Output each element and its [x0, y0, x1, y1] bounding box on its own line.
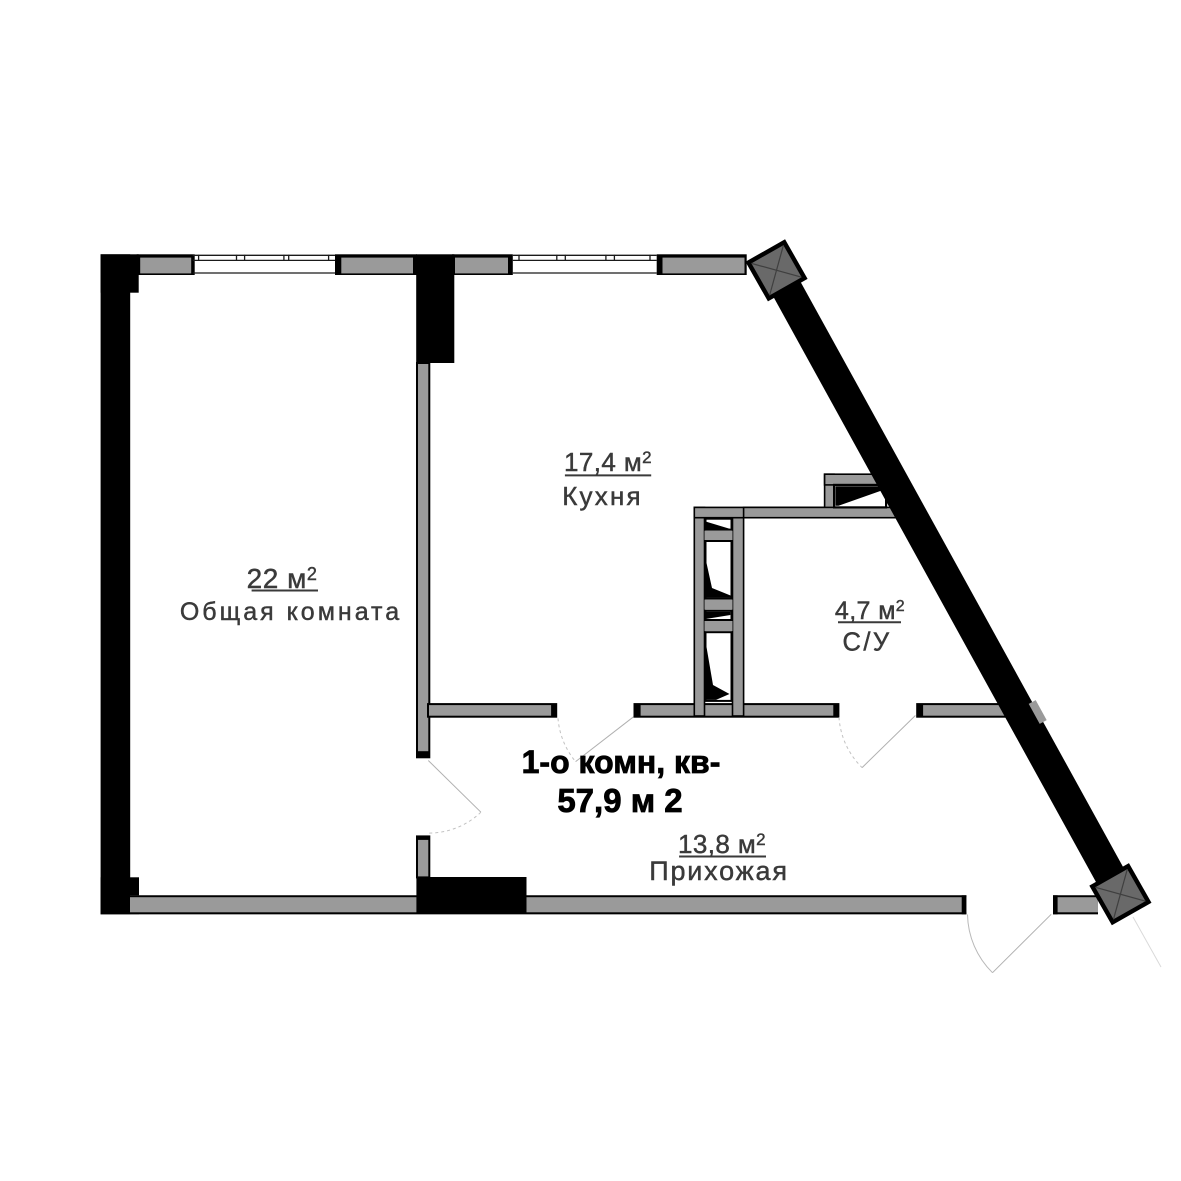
- svg-text:1-о комн, кв-: 1-о комн, кв-: [522, 744, 721, 780]
- svg-text:4,7 м2: 4,7 м2: [835, 597, 905, 625]
- svg-text:Прихожая: Прихожая: [649, 856, 789, 886]
- svg-text:13,8 м2: 13,8 м2: [678, 829, 766, 859]
- svg-text:Общая комната: Общая комната: [180, 598, 402, 626]
- svg-text:22 м2: 22 м2: [247, 563, 318, 594]
- svg-text:Кухня: Кухня: [562, 481, 643, 511]
- svg-text:57,9 м 2: 57,9 м 2: [557, 782, 682, 819]
- svg-text:17,4 м2: 17,4 м2: [564, 447, 652, 477]
- svg-text:С/У: С/У: [843, 629, 892, 657]
